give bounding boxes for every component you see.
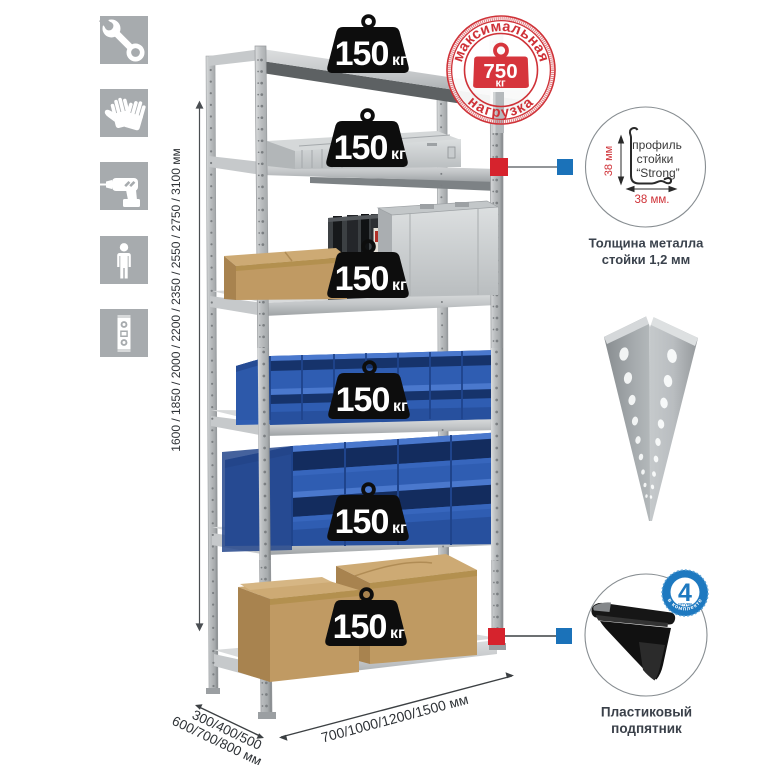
svg-text:стойки 1,2 мм: стойки 1,2 мм bbox=[602, 252, 690, 267]
svg-text:Пластиковый: Пластиковый bbox=[601, 705, 692, 720]
svg-text:Толщина металла: Толщина металла bbox=[589, 236, 704, 251]
svg-text:профиль: профиль bbox=[632, 138, 682, 152]
svg-text:стойки: стойки bbox=[637, 152, 674, 166]
svg-text:кг: кг bbox=[495, 78, 506, 90]
svg-text:“Strong”: “Strong” bbox=[636, 166, 679, 180]
svg-text:подпятник: подпятник bbox=[611, 721, 682, 736]
svg-text:1600 / 1850 / 2000 / 2200 / 23: 1600 / 1850 / 2000 / 2200 / 2350 / 2550 … bbox=[169, 148, 183, 451]
svg-text:38 мм: 38 мм bbox=[603, 146, 615, 176]
svg-text:38 мм.: 38 мм. bbox=[635, 194, 670, 206]
